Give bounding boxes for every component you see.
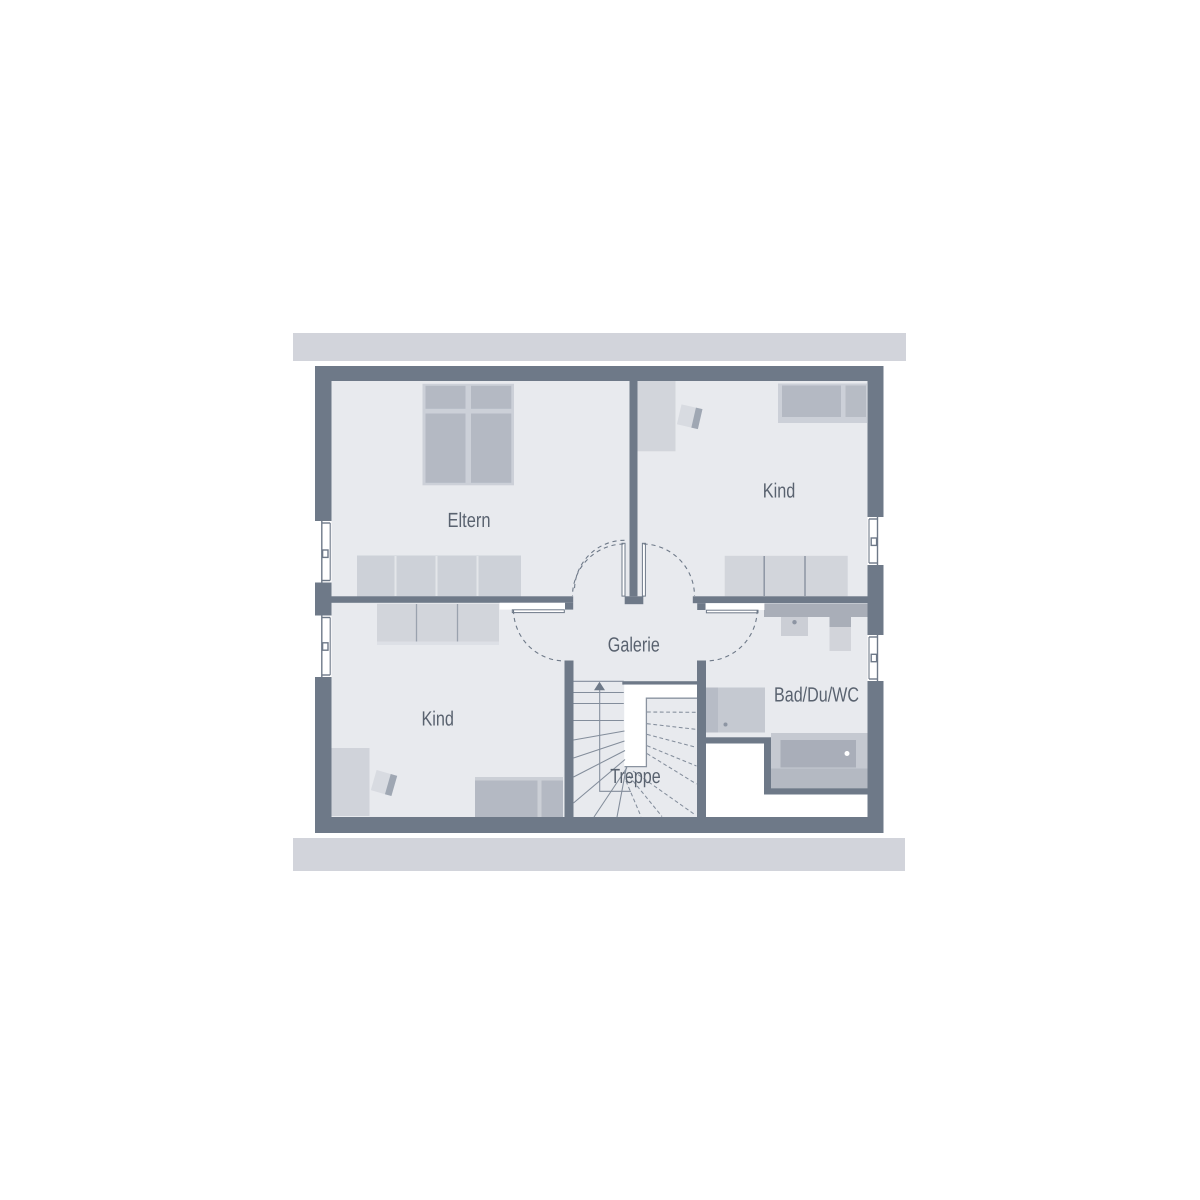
- svg-text:Bad/Du/WC: Bad/Du/WC: [774, 684, 859, 707]
- svg-text:Kind: Kind: [763, 480, 796, 503]
- svg-text:Galerie: Galerie: [608, 634, 660, 657]
- svg-text:Eltern: Eltern: [448, 509, 491, 532]
- svg-text:Treppe: Treppe: [610, 765, 661, 788]
- svg-text:Kind: Kind: [421, 707, 454, 730]
